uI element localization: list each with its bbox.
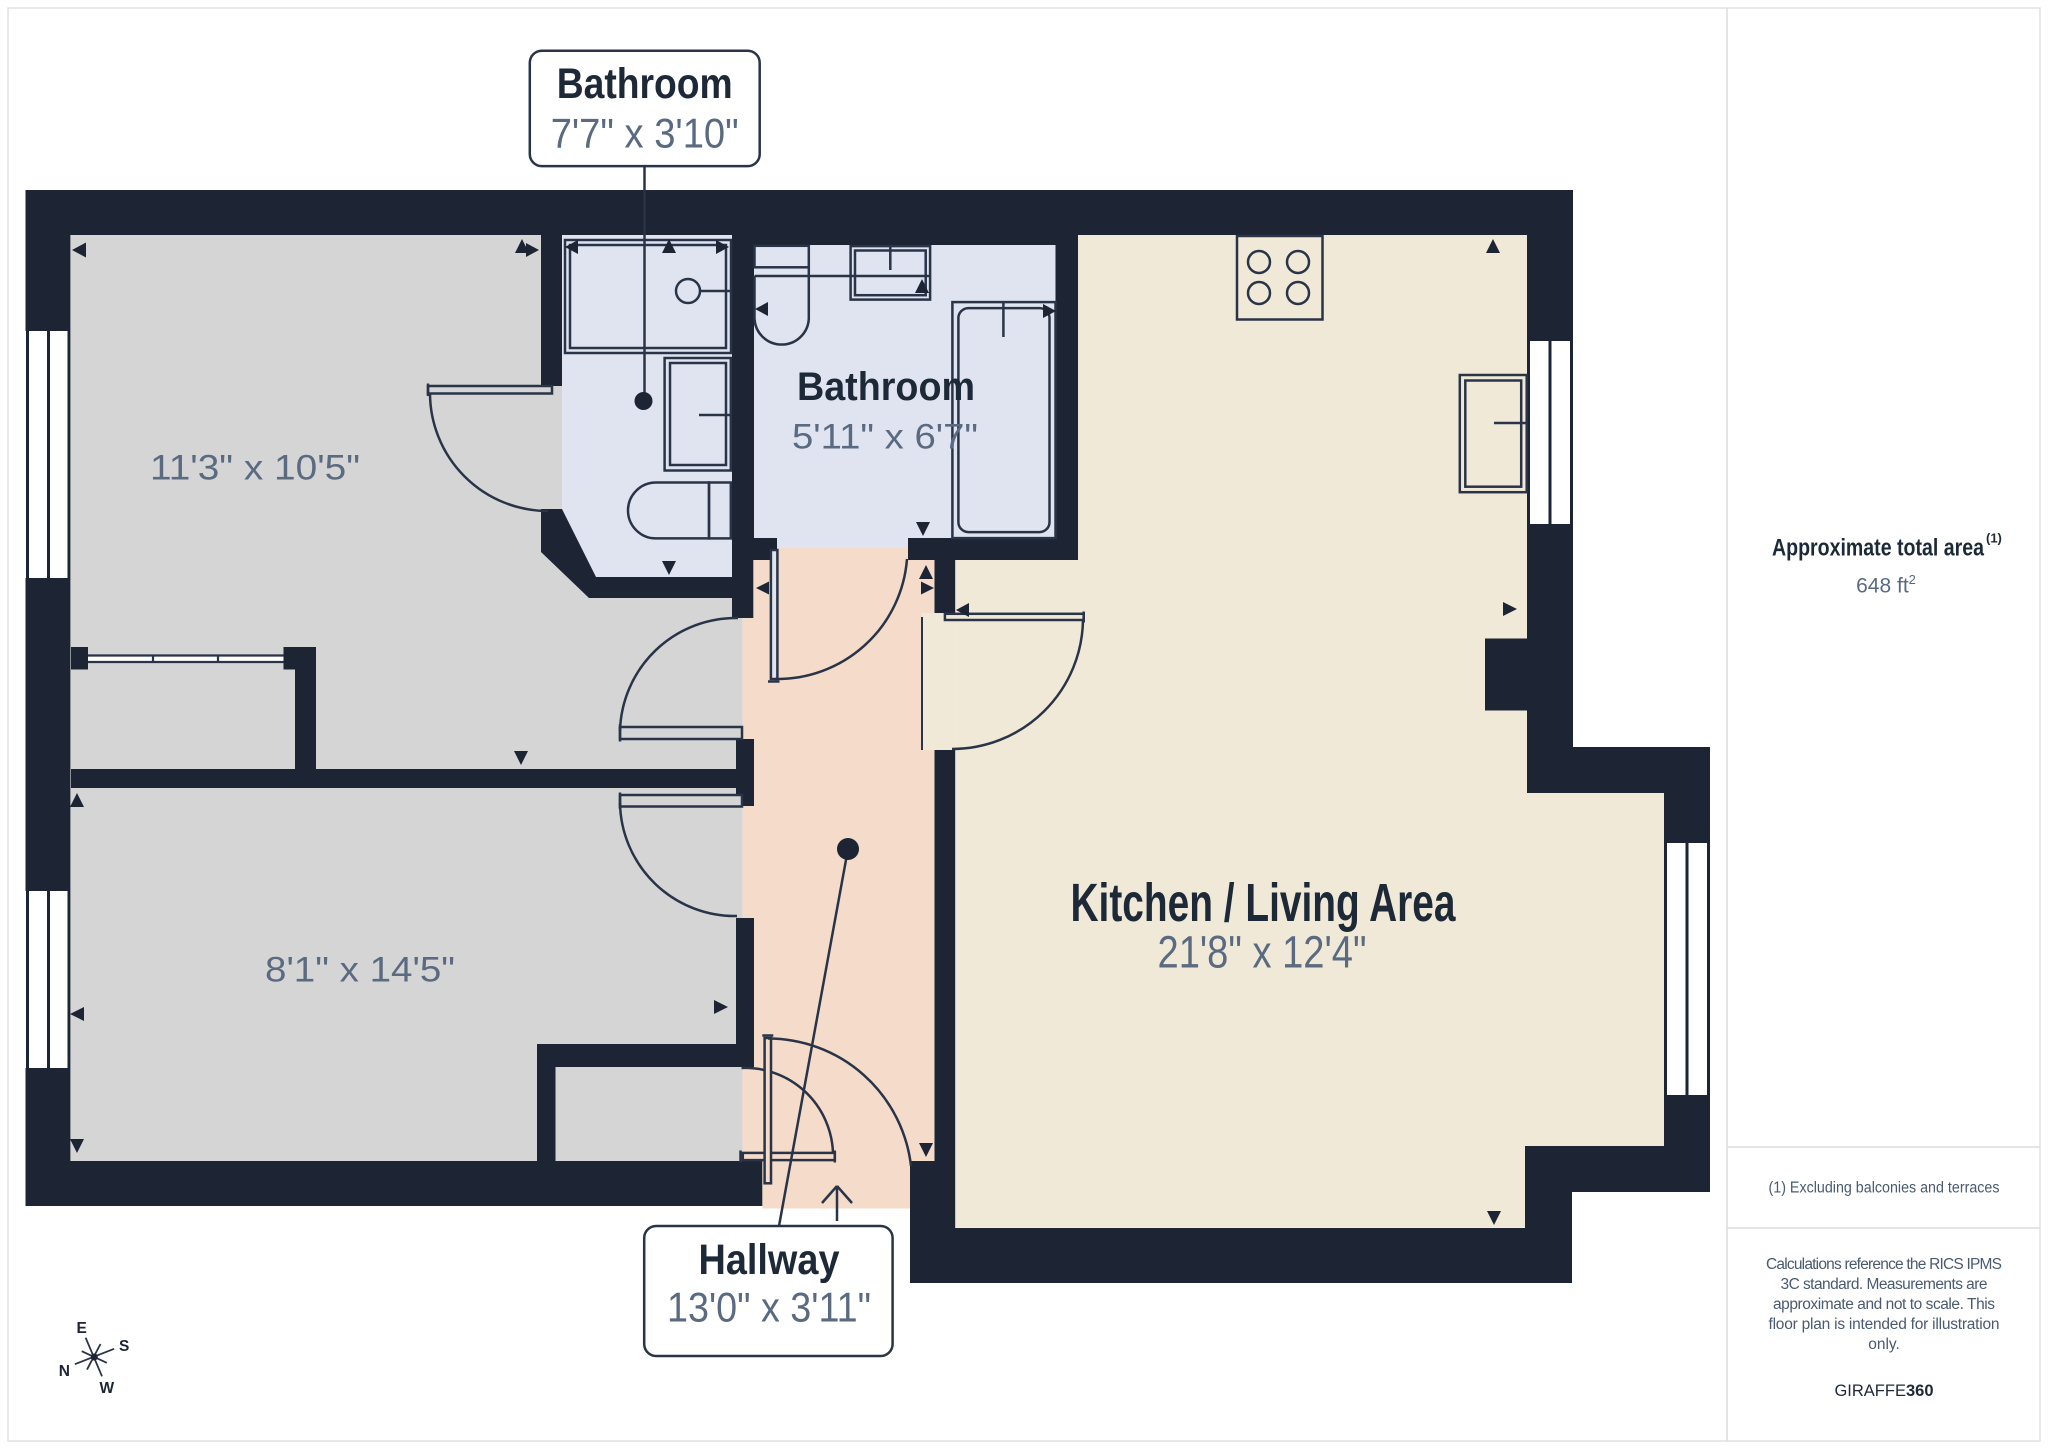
svg-text:only.: only. <box>1868 1336 1900 1353</box>
svg-text:648 ft2: 648 ft2 <box>1856 572 1916 598</box>
svg-text:Approximate total area: Approximate total area <box>1772 535 1985 562</box>
svg-text:Kitchen / Living Area: Kitchen / Living Area <box>1071 873 1457 933</box>
svg-text:5'11" x 6'7": 5'11" x 6'7" <box>792 418 978 457</box>
svg-text:(1): (1) <box>1986 531 2002 546</box>
svg-text:(1) Excluding balconies and te: (1) Excluding balconies and terraces <box>1769 1180 2000 1197</box>
svg-text:3C standard. Measurements are: 3C standard. Measurements are <box>1781 1276 1988 1293</box>
svg-text:N: N <box>59 1363 70 1380</box>
svg-text:S: S <box>119 1338 129 1355</box>
svg-text:Hallway: Hallway <box>699 1236 840 1284</box>
svg-text:Calculations reference the RIC: Calculations reference the RICS IPMS <box>1766 1256 2002 1273</box>
svg-text:13'0" x 3'11": 13'0" x 3'11" <box>667 1284 871 1331</box>
svg-text:W: W <box>99 1380 114 1397</box>
svg-text:11'3" x 10'5": 11'3" x 10'5" <box>150 449 360 488</box>
svg-text:E: E <box>77 1320 87 1337</box>
svg-text:GIRAFFE360: GIRAFFE360 <box>1834 1382 1933 1400</box>
svg-text:8'1" x 14'5": 8'1" x 14'5" <box>265 951 455 990</box>
svg-text:7'7" x 3'10": 7'7" x 3'10" <box>551 110 739 157</box>
svg-text:21'8" x 12'4": 21'8" x 12'4" <box>1158 927 1367 978</box>
svg-text:Bathroom: Bathroom <box>557 60 733 108</box>
svg-text:approximate and not to scale.: approximate and not to scale. This <box>1773 1296 1995 1313</box>
svg-text:Bathroom: Bathroom <box>797 365 975 409</box>
svg-text:floor plan is intended for ill: floor plan is intended for illustration <box>1769 1316 2000 1333</box>
